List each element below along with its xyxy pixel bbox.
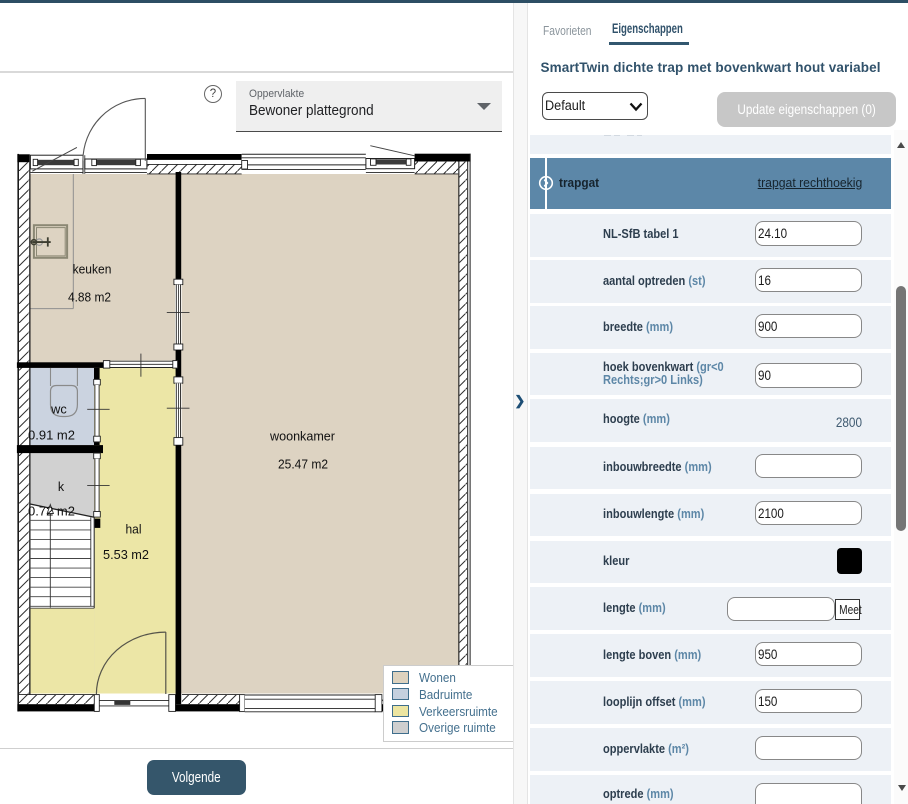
svg-text:0.91 m2: 0.91 m2 xyxy=(28,429,75,443)
svg-text:k: k xyxy=(58,480,65,494)
svg-text:keuken: keuken xyxy=(73,263,112,277)
svg-text:hal: hal xyxy=(126,523,142,537)
svg-text:25.47 m2: 25.47 m2 xyxy=(278,458,328,472)
svg-text:woonkamer: woonkamer xyxy=(269,430,335,444)
svg-text:4.88 m2: 4.88 m2 xyxy=(68,291,111,305)
svg-text:0.72 m2: 0.72 m2 xyxy=(28,505,75,519)
svg-text:wc: wc xyxy=(50,403,67,417)
svg-text:5.53 m2: 5.53 m2 xyxy=(103,548,149,562)
